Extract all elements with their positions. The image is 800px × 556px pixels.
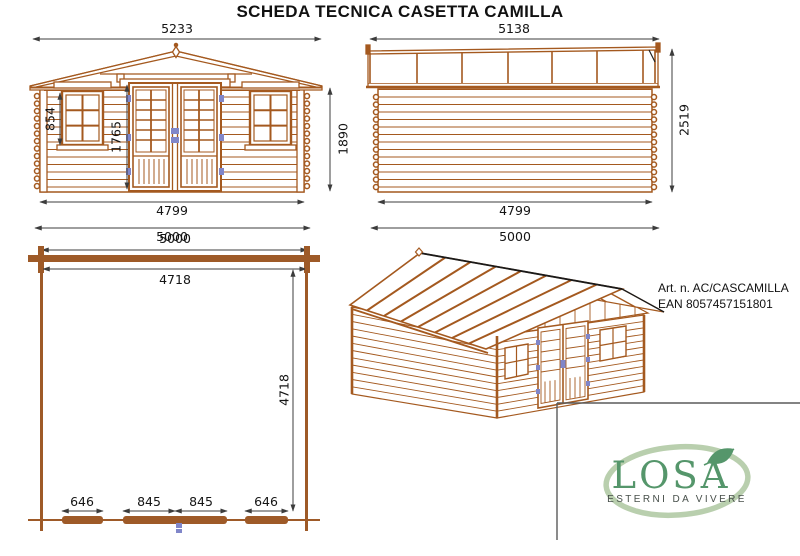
- dim-front-window-height: 854: [43, 107, 58, 131]
- dim-plan-seg-3: 845: [189, 494, 213, 509]
- logo-tagline: ESTERNI DA VIVERE: [607, 494, 747, 505]
- plan-wall-top: [28, 255, 320, 262]
- article-number: Art. n. AC/CASCAMILLA: [658, 280, 789, 296]
- door-handle: [171, 128, 179, 134]
- dim-plan-inner-width: 4718: [159, 272, 191, 287]
- ean-code: EAN 8057457151801: [658, 296, 789, 312]
- dim-front-wall-height: 1890: [336, 123, 351, 155]
- plan-wall-left: [40, 262, 43, 531]
- dim-side-base-width: 5000: [499, 229, 531, 244]
- plan-wall-right: [305, 262, 308, 531]
- dim-side-total-height: 2519: [677, 104, 692, 136]
- front-double-door: [120, 79, 230, 191]
- floor-plan-view: 5000 4718 646 845 845 6: [28, 231, 320, 533]
- dim-front-roof-width: 5233: [161, 21, 193, 36]
- iso-door: [536, 321, 590, 408]
- plan-bottom-dimensions: 646 845 845 646: [62, 494, 288, 511]
- plan-bottom-segment: [245, 516, 288, 524]
- dim-plan-inner-depth: 4718: [277, 374, 292, 406]
- side-wall: [378, 89, 652, 192]
- technical-sheet: SCHEDA TECNICA CASETTA CAMILLA: [0, 0, 800, 556]
- front-corner-post-right: [297, 88, 304, 192]
- dim-plan-seg-4: 646: [254, 494, 278, 509]
- plan-bottom-segment: [123, 516, 227, 524]
- dim-side-roof-width: 5138: [498, 21, 530, 36]
- isometric-view: [350, 248, 664, 418]
- dim-plan-outer-width: 5000: [159, 231, 191, 246]
- side-roof: [366, 43, 660, 87]
- dim-front-door-height: 1765: [109, 121, 124, 153]
- dim-plan-seg-1: 646: [70, 494, 94, 509]
- plan-bottom-segment: [62, 516, 103, 524]
- product-codes: Art. n. AC/CASCAMILLA EAN 8057457151801: [658, 280, 789, 312]
- iso-window-front-right: [600, 326, 626, 361]
- front-window-left: [54, 82, 111, 150]
- plan-door-handle: [176, 523, 182, 528]
- front-window-right: [242, 82, 299, 150]
- dim-side-wall-width: 4799: [499, 203, 531, 218]
- front-elevation-view: 5233 854 1765 1890 4799 5000: [30, 21, 351, 244]
- dim-plan-seg-2: 845: [137, 494, 161, 509]
- iso-window-front-left: [505, 344, 528, 379]
- losa-logo: LOSA ESTERNI DA VIVERE: [600, 432, 770, 532]
- front-corner-post-left: [40, 88, 47, 192]
- side-elevation-view: 5138 2519 4799 5000: [366, 21, 692, 244]
- dim-front-wall-width: 4799: [156, 203, 188, 218]
